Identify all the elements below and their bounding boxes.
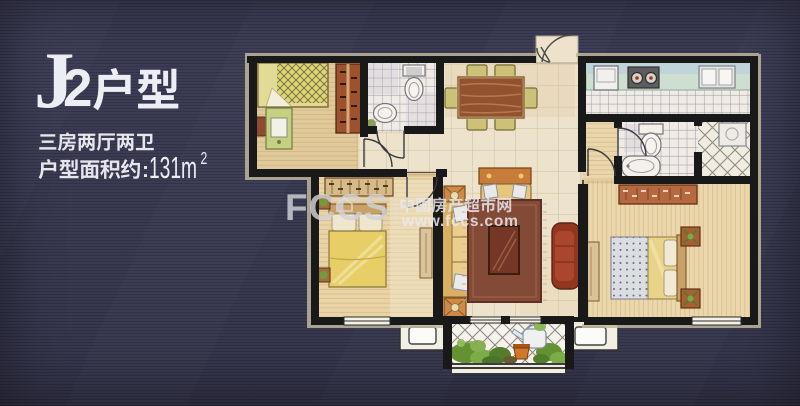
- svg-text:2: 2: [63, 59, 92, 118]
- svg-text:www.fccs.com: www.fccs.com: [401, 213, 519, 230]
- svg-text:2: 2: [201, 149, 208, 169]
- svg-text::: :: [142, 159, 149, 182]
- svg-text:131m: 131m: [149, 152, 197, 186]
